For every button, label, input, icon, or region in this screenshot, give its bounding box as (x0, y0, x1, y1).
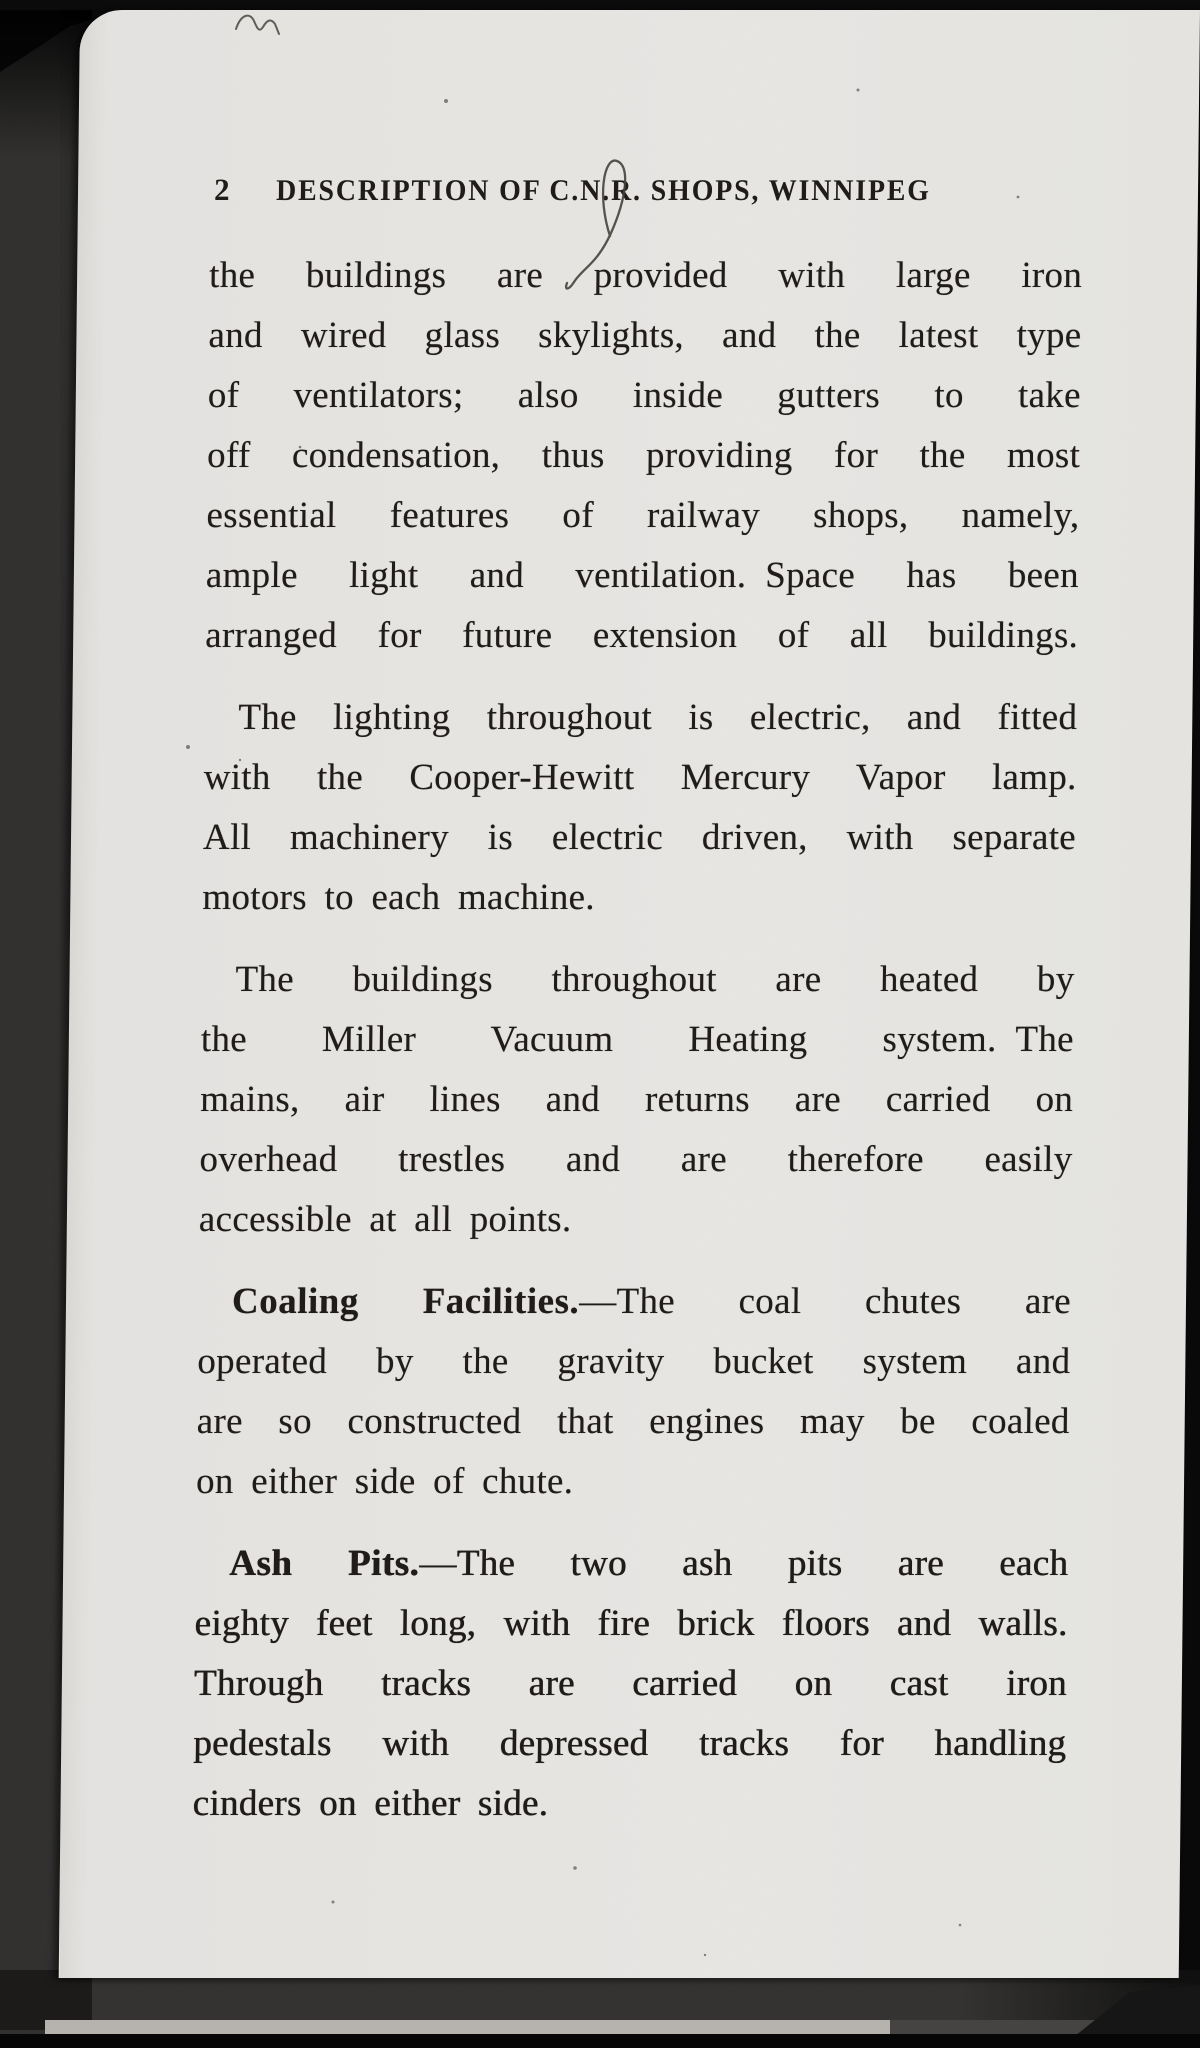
text-line: on either side of chute. (196, 1452, 1070, 1512)
paragraph: Coaling Facilities.—The coal chutes areo… (196, 1272, 1072, 1512)
text-line: motors to each machine. (202, 868, 1076, 928)
bold-lead-in: Ash Pits. (229, 1543, 420, 1584)
paragraph: the buildings are provided with large ir… (205, 246, 1083, 666)
text-line: essential features of railway shops, nam… (206, 486, 1080, 546)
text-line: arranged for future extension of all bui… (205, 606, 1079, 666)
paragraph: The lighting throughout is electric, and… (202, 688, 1078, 928)
book-page: 2 DESCRIPTION OF C.N.R. SHOPS, WINNIPEG … (59, 10, 1200, 1978)
page-number: 2 (214, 172, 230, 208)
text-line: of ventilators; also inside gutters to t… (207, 366, 1081, 426)
scanned-book-page-photo: 2 DESCRIPTION OF C.N.R. SHOPS, WINNIPEG … (0, 0, 1200, 2048)
text-line: are so constructed that engines may be c… (196, 1392, 1070, 1452)
text-line: overhead trestles and are therefore easi… (199, 1130, 1073, 1190)
text-line: The lighting throughout is electric, and… (204, 688, 1078, 748)
text-line: All machinery is electric driven, with s… (203, 808, 1077, 868)
running-title: DESCRIPTION OF C.N.R. SHOPS, WINNIPEG (275, 174, 930, 208)
paragraph: The buildings throughout are heated byth… (199, 950, 1075, 1250)
text-line: accessible at all points. (199, 1190, 1073, 1250)
text-line: off condensation, thus providing for the… (207, 426, 1081, 486)
text-line: mains, air lines and returns are carried… (200, 1070, 1074, 1130)
page-content: 2 DESCRIPTION OF C.N.R. SHOPS, WINNIPEG … (60, 10, 1200, 1834)
text-line: with the Cooper-Hewitt Mercury Vapor lam… (203, 748, 1077, 808)
text-line: Coaling Facilities.—The coal chutes are (198, 1272, 1072, 1332)
text-line: pedestals with depressed tracks for hand… (193, 1714, 1067, 1774)
text-line: the Miller Vacuum Heating system. The (201, 1010, 1075, 1070)
page-header: 2 DESCRIPTION OF C.N.R. SHOPS, WINNIPEG (214, 172, 1083, 208)
page-body-text: the buildings are provided with large ir… (192, 246, 1082, 1834)
text-line: the buildings are provided with large ir… (209, 246, 1083, 306)
text-line: The buildings throughout are heated by (201, 950, 1075, 1010)
text-line: cinders on either side. (192, 1774, 1066, 1834)
bold-lead-in: Coaling Facilities. (232, 1281, 580, 1322)
text-line: and wired glass skylights, and the lates… (208, 306, 1082, 366)
text-line: eighty feet long, with fire brick floors… (194, 1594, 1068, 1654)
text-line: Ash Pits.—The two ash pits are each (195, 1534, 1069, 1594)
paragraph: Ash Pits.—The two ash pits are eacheight… (192, 1534, 1068, 1834)
text-line: Through tracks are carried on cast iron (194, 1654, 1068, 1714)
text-line: ample light and ventilation. Space has b… (206, 546, 1080, 606)
text-line: operated by the gravity bucket system an… (197, 1332, 1071, 1392)
